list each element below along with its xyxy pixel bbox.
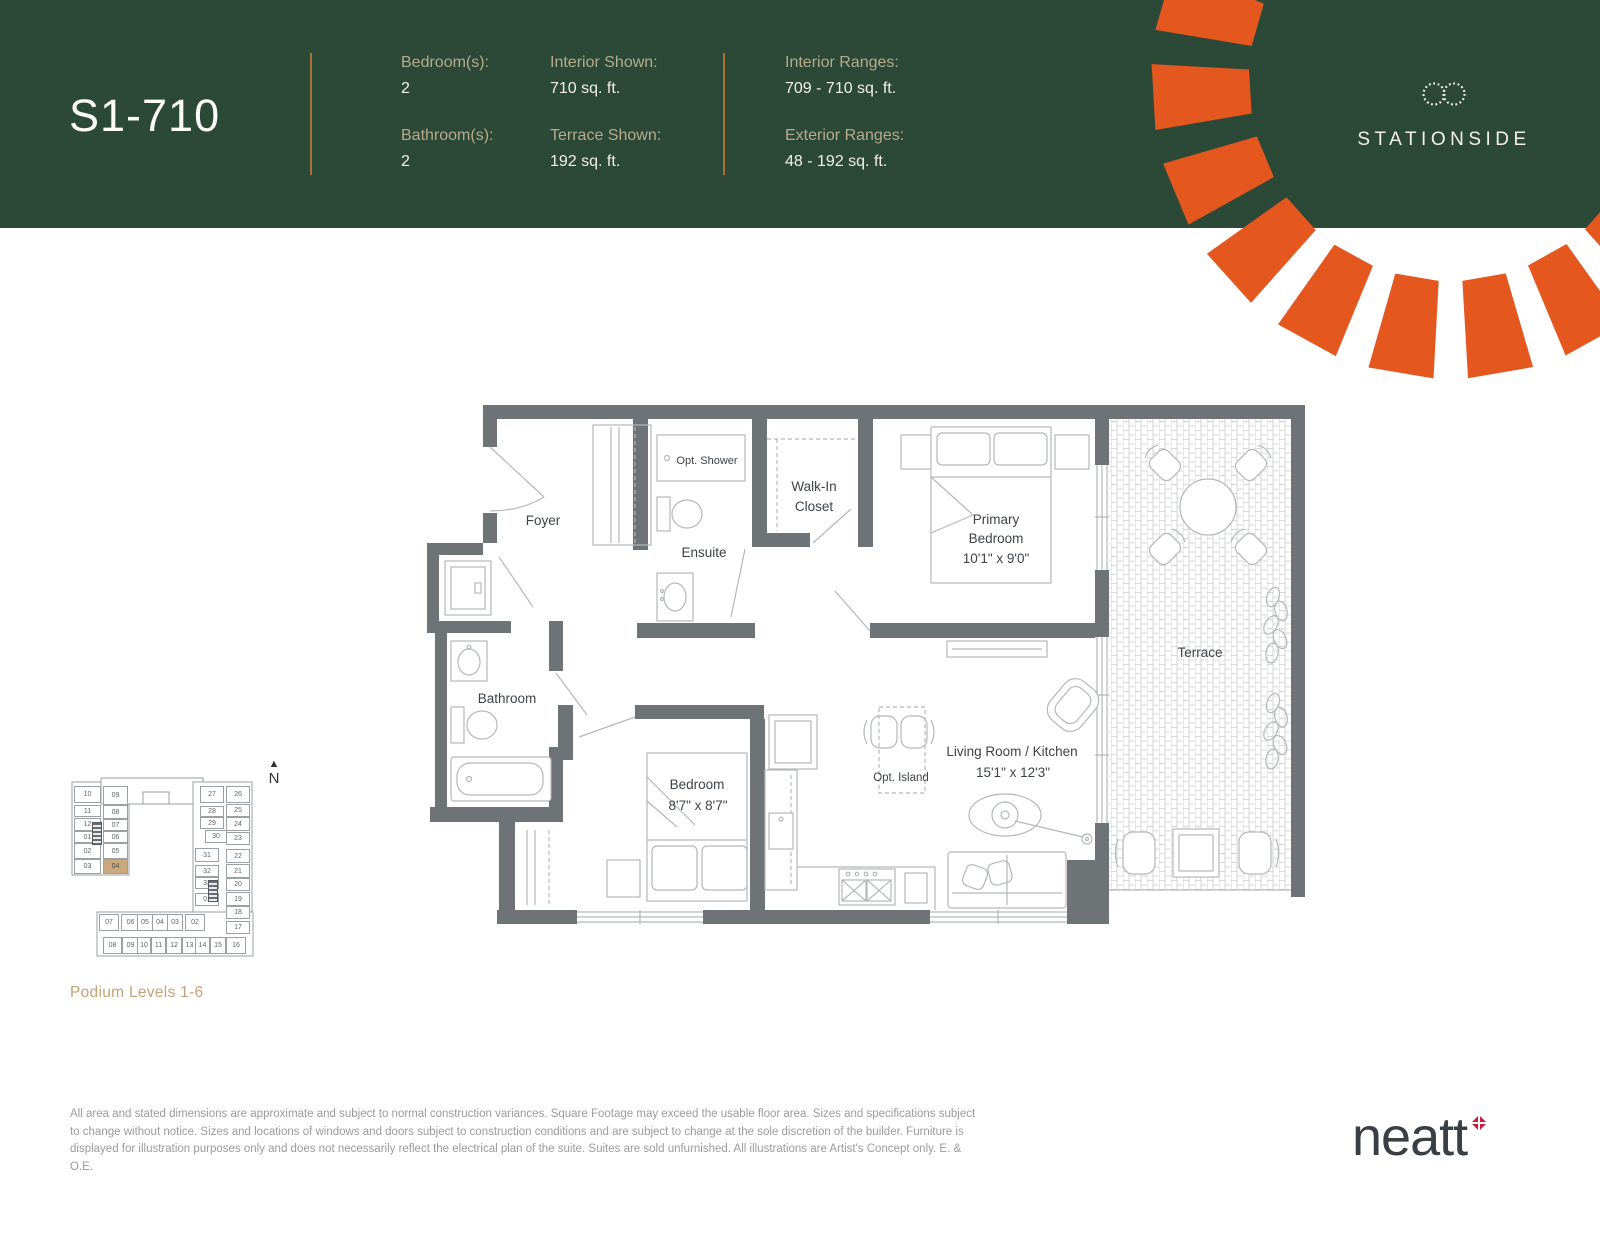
keyplan-unit: 12 [166, 937, 182, 954]
interior-ranges-value: 709 - 710 sq. ft. [785, 81, 904, 97]
interior-shown-label: Interior Shown: [550, 55, 661, 71]
keyplan-unit: 20 [226, 878, 250, 891]
keyplan-unit: 10 [74, 786, 101, 803]
disclaimer-line: All area and stated dimensions are appro… [70, 1106, 980, 1124]
keyplan-unit: 04 [103, 859, 128, 874]
keyplan-unit: 16 [226, 937, 246, 954]
terrace-shown-label: Terrace Shown: [550, 128, 661, 144]
keyplan-unit: 11 [151, 937, 166, 954]
keyplan-unit: 14 [195, 937, 210, 954]
neatt-wordmark: neatt [1352, 1110, 1467, 1164]
keyplan-elevator [92, 822, 102, 845]
laundry-closet [445, 561, 491, 615]
room-label-walk-in-1: Walk-In [791, 479, 836, 494]
exterior-ranges-label: Exterior Ranges: [785, 128, 904, 144]
terrace-shown-value: 192 sq. ft. [550, 154, 661, 170]
neatt-pinwheel-icon [1470, 1114, 1488, 1132]
keyplan-unit: 07 [103, 819, 128, 831]
keyplan-unit: 23 [226, 832, 250, 845]
room-label-primary-1: Primary [973, 512, 1020, 527]
bedrooms-label: Bedroom(s): [401, 55, 493, 71]
north-arrow: ▲ N [262, 758, 286, 787]
bathrooms-value: 2 [401, 154, 493, 170]
room-dims-bedroom: 8'7" x 8'7" [668, 798, 727, 813]
room-label-opt-shower: Opt. Shower [676, 455, 737, 467]
keyplan-unit: 28 [200, 806, 224, 817]
keyplan-unit: 24 [226, 817, 250, 831]
room-label-walk-in-2: Closet [795, 499, 834, 514]
bathroom-fixtures [451, 641, 551, 801]
keyplan-unit: 26 [226, 786, 250, 803]
disclaimer: All area and stated dimensions are appro… [70, 1106, 980, 1176]
keyplan-elevator [208, 880, 218, 902]
keyplan-unit: 29 [200, 817, 224, 829]
keyplan-unit: 31 [195, 848, 219, 862]
spec-column-counts: Bedroom(s): 2 Bathroom(s): 2 [401, 55, 493, 170]
keyplan-unit: 18 [226, 906, 250, 919]
bedrooms-value: 2 [401, 81, 493, 97]
bathrooms-label: Bathroom(s): [401, 128, 493, 144]
keyplan-caption: Podium Levels 1-6 [70, 984, 203, 1002]
keyplan-unit: 05 [137, 914, 153, 931]
room-dims-primary: 10'1" x 9'0" [963, 551, 1030, 566]
room-label-foyer: Foyer [526, 513, 561, 528]
keyplan-unit: 03 [167, 914, 183, 931]
room-label-living: Living Room / Kitchen [946, 744, 1077, 759]
keyplan-unit: 04 [152, 914, 168, 931]
unit-title: S1-710 [69, 90, 220, 142]
room-label-opt-island: Opt. Island [873, 772, 929, 784]
interior-ranges-label: Interior Ranges: [785, 55, 904, 71]
north-label: N [262, 770, 286, 787]
keyplan-unit: 08 [103, 805, 128, 819]
keyplan-units: 1011120102030908070605042728293031323301… [58, 750, 258, 960]
keyplan-unit: 17 [226, 921, 250, 934]
room-label-terrace: Terrace [1177, 645, 1222, 660]
keyplan-unit: 15 [210, 937, 226, 954]
keyplan-unit: 05 [103, 843, 128, 859]
keyplan-unit: 32 [195, 865, 219, 877]
keyplan-unit: 10 [137, 937, 151, 954]
room-dims-living: 15'1" x 12'3" [976, 765, 1050, 780]
keyplan-unit: 11 [74, 805, 101, 817]
sunburst-graphic [1090, 0, 1600, 400]
keyplan-unit: 25 [226, 804, 250, 817]
keyplan-unit: 30 [205, 830, 227, 843]
keyplan-unit: 21 [226, 864, 250, 878]
keyplan-unit: 19 [226, 892, 250, 906]
header-divider [723, 53, 725, 175]
keyplan: 1011120102030908070605042728293031323301… [58, 750, 258, 960]
keyplan-unit: 03 [74, 859, 101, 874]
keyplan-unit: 02 [74, 843, 101, 859]
spec-column-shown: Interior Shown: 710 sq. ft. Terrace Show… [550, 55, 661, 170]
room-label-ensuite: Ensuite [681, 545, 726, 560]
keyplan-unit: 27 [200, 786, 224, 803]
neatt-logo: neatt [1352, 1110, 1488, 1164]
floorplan-sheet: S1-710 Bedroom(s): 2 Bathroom(s): 2 Inte… [0, 0, 1600, 1236]
room-label-primary-2: Bedroom [969, 531, 1024, 546]
room-label-bathroom: Bathroom [478, 691, 537, 706]
keyplan-unit: 22 [226, 849, 250, 863]
header-divider [310, 53, 312, 175]
north-arrow-icon: ▲ [262, 758, 286, 770]
exterior-ranges-value: 48 - 192 sq. ft. [785, 154, 904, 170]
interior-shown-value: 710 sq. ft. [550, 81, 661, 97]
keyplan-unit: 07 [99, 914, 119, 931]
room-label-bedroom: Bedroom [670, 777, 725, 792]
disclaimer-line: displayed for illustration purposes only… [70, 1141, 980, 1176]
keyplan-unit: 08 [103, 937, 122, 954]
keyplan-unit: 06 [103, 831, 128, 843]
kitchen-fixtures [765, 715, 935, 910]
disclaimer-line: to change without notice. Sizes and loca… [70, 1124, 980, 1142]
floorplan-drawing: Foyer Opt. Shower Ensuite Walk-In Closet… [415, 385, 1325, 945]
spec-column-ranges: Interior Ranges: 709 - 710 sq. ft. Exter… [785, 55, 904, 170]
keyplan-unit: 09 [103, 786, 128, 805]
keyplan-unit: 02 [185, 914, 205, 931]
